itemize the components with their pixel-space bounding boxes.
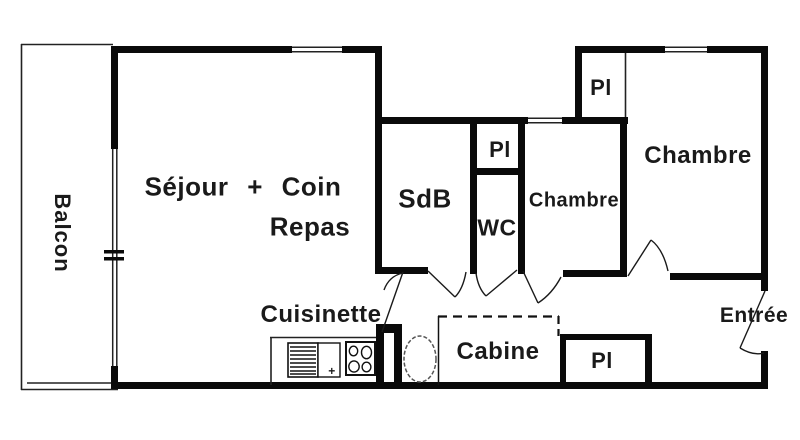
room-label-cabin: Cabine bbox=[456, 338, 539, 366]
room-label-balcony: Balcon bbox=[49, 193, 75, 272]
room-label-bathroom: SdB bbox=[398, 184, 452, 215]
kitchen-plus-symbol: + bbox=[328, 364, 336, 378]
room-label-entrance: Entrée bbox=[720, 304, 788, 328]
window-break-icon bbox=[104, 250, 124, 261]
floorplan-drawing bbox=[0, 0, 800, 440]
room-label-bedroom-right: Chambre bbox=[644, 142, 752, 170]
oval-fixture-icon bbox=[404, 336, 436, 382]
closet-label-top: Pl bbox=[590, 75, 612, 101]
cooktop-icon bbox=[346, 342, 375, 375]
exterior-walls bbox=[111, 46, 768, 389]
closet-label-entry: Pl bbox=[591, 348, 613, 374]
room-label-bedroom-middle: Chambre bbox=[529, 190, 619, 213]
room-label-living-line2: Repas bbox=[270, 212, 351, 243]
closet-label-hall: Pl bbox=[489, 137, 511, 163]
room-label-living-line1: Séjour + Coin bbox=[145, 172, 342, 203]
floorplan: Balcon Séjour + Coin Repas SdB WC Pl Cha… bbox=[0, 0, 800, 440]
room-label-kitchenette: Cuisinette bbox=[260, 301, 381, 329]
room-label-wc: WC bbox=[477, 215, 516, 242]
